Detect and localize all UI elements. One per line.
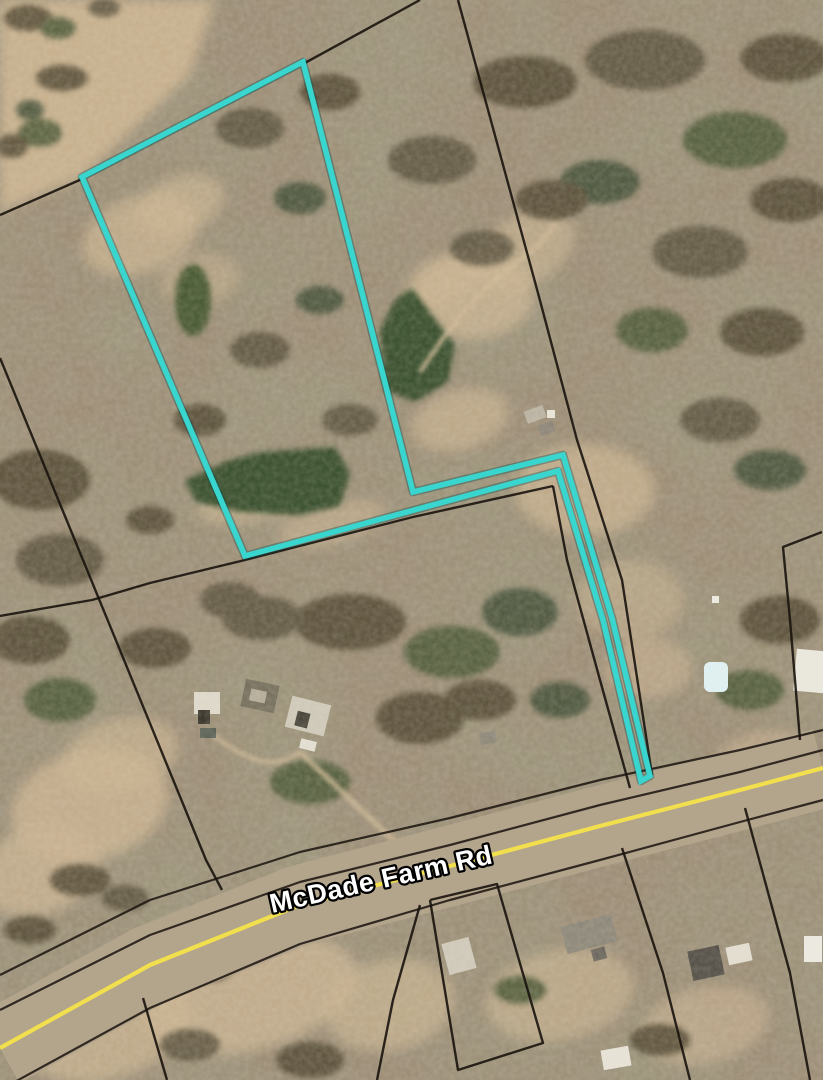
aerial-parcel-map[interactable]: McDade Farm Rd (0, 0, 823, 1080)
terrain-layer (0, 0, 823, 1080)
terrain-grain (0, 0, 823, 1080)
map-canvas[interactable]: McDade Farm Rd (0, 0, 823, 1080)
